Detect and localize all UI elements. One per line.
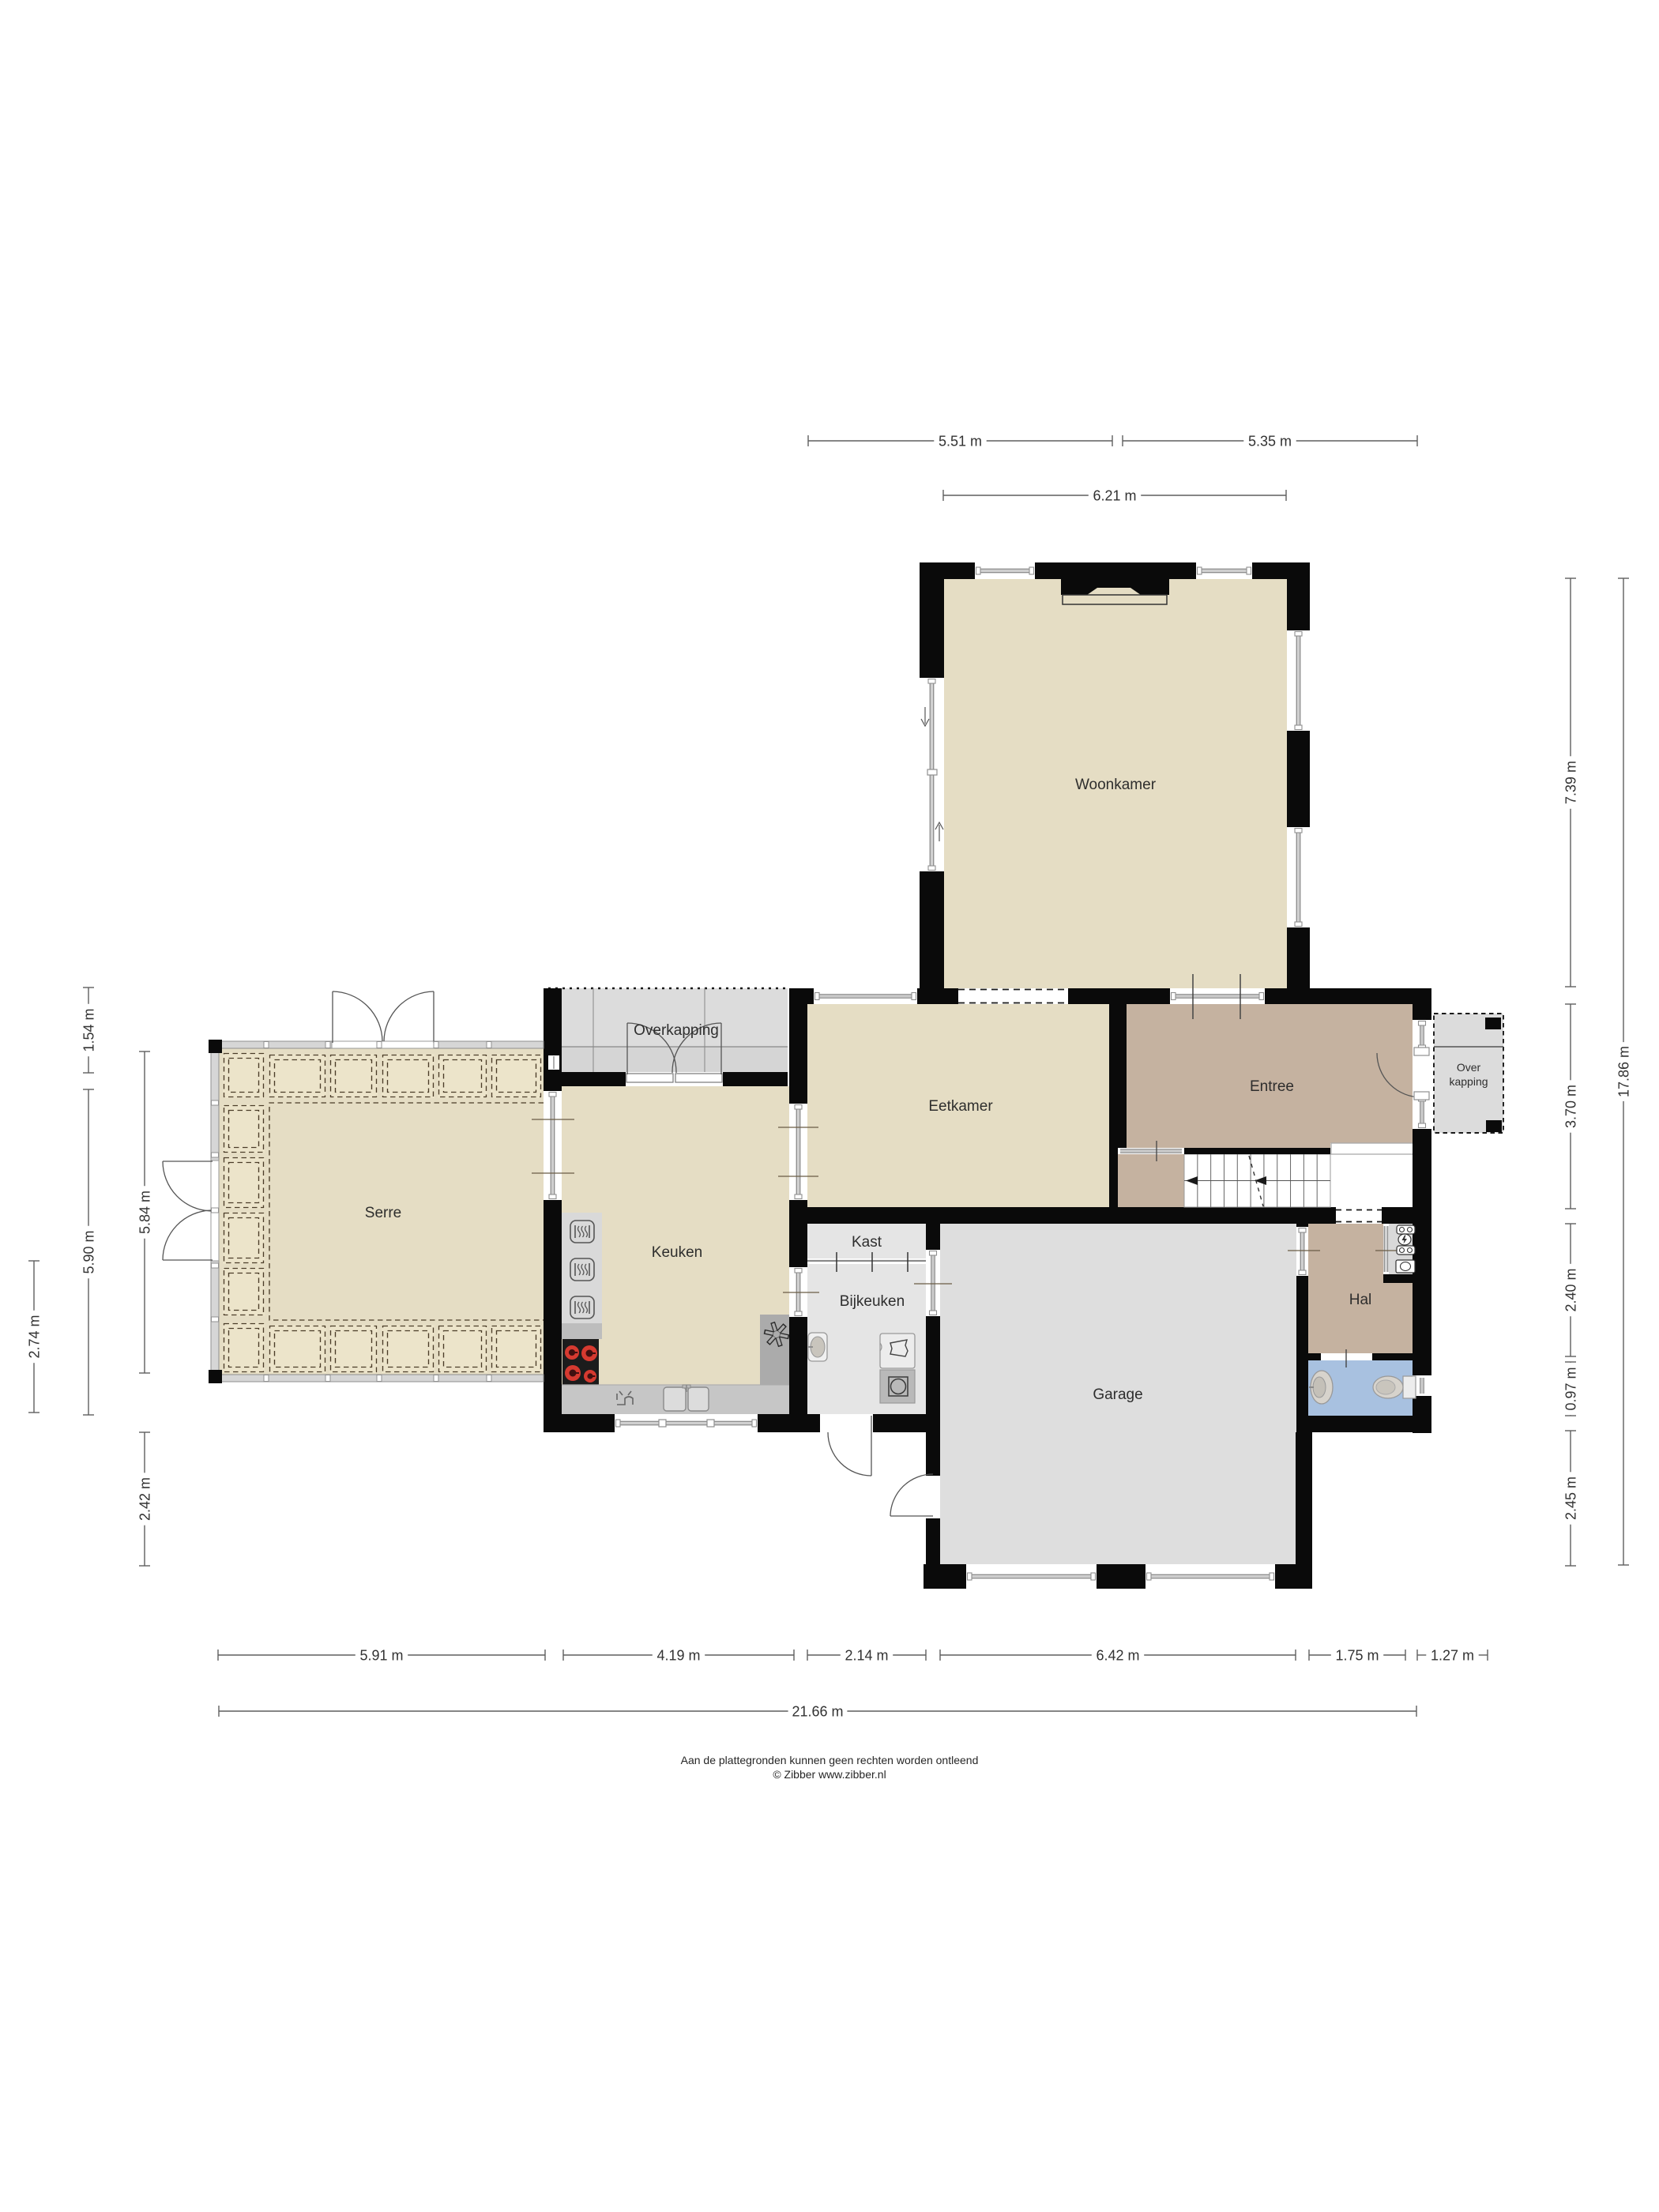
svg-text:5.91 m: 5.91 m [359,1648,403,1664]
svg-text:5.90 m: 5.90 m [81,1230,97,1273]
svg-text:2.42 m: 2.42 m [137,1477,153,1521]
svg-text:Garage: Garage [1093,1386,1142,1403]
svg-text:1.54 m: 1.54 m [81,1008,97,1051]
svg-text:2.14 m: 2.14 m [845,1648,888,1664]
svg-text:Woonkamer: Woonkamer [1075,777,1157,793]
svg-text:kapping: kapping [1449,1075,1488,1088]
svg-text:2.40 m: 2.40 m [1563,1268,1579,1311]
svg-text:21.66 m: 21.66 m [792,1704,843,1720]
svg-text:1.27 m: 1.27 m [1431,1648,1474,1664]
svg-text:5.84 m: 5.84 m [137,1191,153,1234]
svg-text:2.74 m: 2.74 m [27,1315,43,1358]
svg-text:0.97 m: 0.97 m [1563,1367,1579,1410]
svg-text:Serre: Serre [365,1205,401,1221]
svg-text:Overkapping: Overkapping [634,1022,719,1039]
svg-text:6.42 m: 6.42 m [1096,1648,1139,1664]
svg-text:Entree: Entree [1250,1078,1294,1095]
svg-text:Over: Over [1457,1061,1481,1074]
svg-text:Aan de plattegronden kunnen ge: Aan de plattegronden kunnen geen rechten… [681,1754,979,1766]
svg-text:4.19 m: 4.19 m [656,1648,700,1664]
svg-text:Bijkeuken: Bijkeuken [840,1293,905,1310]
svg-text:2.45 m: 2.45 m [1563,1477,1579,1520]
svg-text:Eetkamer: Eetkamer [928,1098,993,1115]
svg-text:17.86 m: 17.86 m [1616,1046,1632,1097]
svg-text:Kast: Kast [852,1234,882,1251]
svg-text:6.21 m: 6.21 m [1093,488,1136,504]
svg-text:5.51 m: 5.51 m [939,434,982,450]
svg-text:5.35 m: 5.35 m [1248,434,1292,450]
svg-text:3.70 m: 3.70 m [1563,1085,1579,1128]
svg-text:1.75 m: 1.75 m [1335,1648,1379,1664]
svg-text:Hal: Hal [1349,1292,1372,1308]
svg-text:© Zibber www.zibber.nl: © Zibber www.zibber.nl [773,1768,886,1781]
svg-text:Keuken: Keuken [652,1244,702,1261]
svg-text:7.39 m: 7.39 m [1563,761,1579,804]
